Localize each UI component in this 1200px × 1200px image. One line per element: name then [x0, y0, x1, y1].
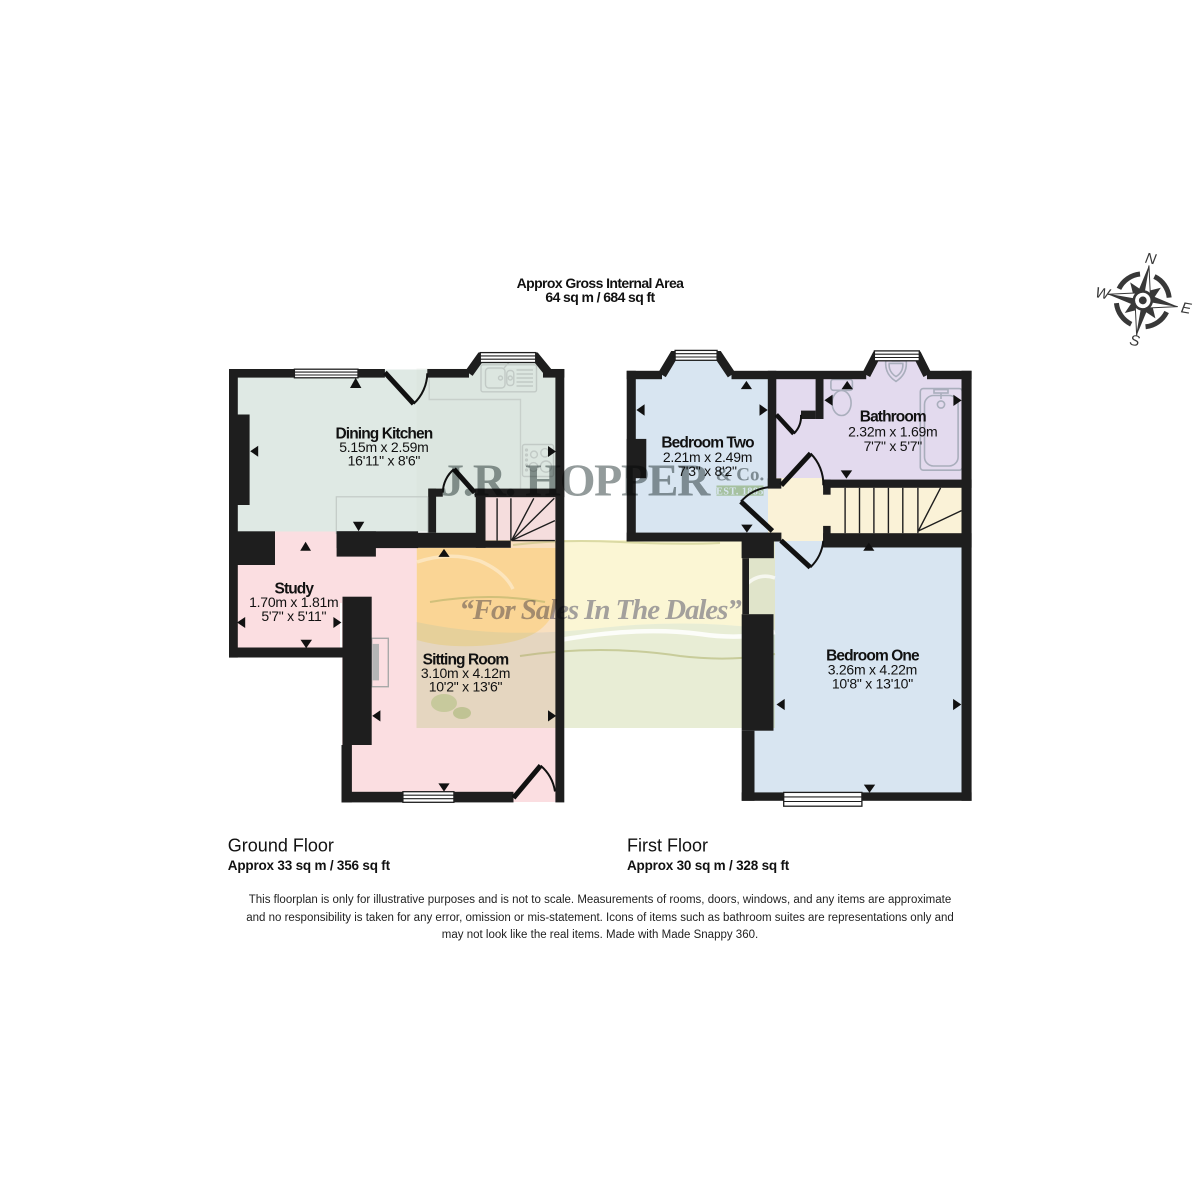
svg-text:and no responsibility is taken: and no responsibility is taken for any e…: [246, 912, 954, 924]
svg-text:First Floor: First Floor: [627, 836, 708, 856]
svg-text:Approx 33 sq m / 356 sq ft: Approx 33 sq m / 356 sq ft: [228, 858, 391, 873]
svg-text:N: N: [1144, 250, 1158, 269]
svg-text:EST. 1885: EST. 1885: [716, 486, 764, 497]
svg-text:10'8" x 13'10": 10'8" x 13'10": [832, 675, 913, 691]
svg-text:64 sq m / 684 sq ft: 64 sq m / 684 sq ft: [545, 289, 655, 305]
svg-text:J.R. HOPPER: J.R. HOPPER: [441, 455, 711, 506]
svg-text:10'2" x 13'6": 10'2" x 13'6": [429, 679, 503, 695]
svg-text:Ground Floor: Ground Floor: [228, 836, 334, 856]
svg-text:& Co.: & Co.: [716, 465, 765, 486]
svg-text:E: E: [1180, 299, 1194, 318]
svg-text:16'11" x 8'6": 16'11" x 8'6": [348, 452, 421, 468]
svg-text:5'7" x 5'11": 5'7" x 5'11": [261, 608, 326, 624]
svg-text:2.32m x 1.69m: 2.32m x 1.69m: [848, 423, 937, 439]
svg-text:Approx 30 sq m / 328 sq ft: Approx 30 sq m / 328 sq ft: [627, 858, 790, 873]
svg-text:S: S: [1128, 332, 1141, 350]
svg-text:“For Sales In The Dales”: “For Sales In The Dales”: [459, 594, 742, 626]
svg-text:7'7" x 5'7": 7'7" x 5'7": [864, 438, 923, 454]
svg-text:may not look like the real ite: may not look like the real items. Made w…: [442, 929, 758, 941]
svg-text:This floorplan is only for ill: This floorplan is only for illustrative …: [249, 894, 951, 906]
